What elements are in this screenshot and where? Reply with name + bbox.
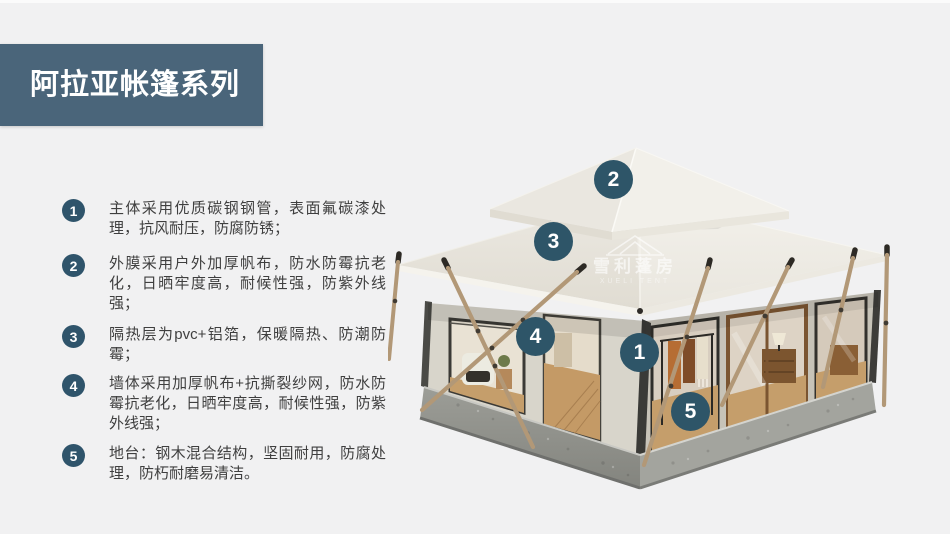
guy-pole [884, 247, 889, 405]
feature-list: 1 主体采用优质碳钢钢管，表面氟碳漆处理，抗风耐压，防腐防锈； 2 外膜采用户外… [50, 199, 386, 484]
feature-number-badge: 2 [62, 254, 85, 277]
page-title: 阿拉亚帐篷系列 [30, 71, 240, 100]
title-banner: 阿拉亚帐篷系列 [0, 44, 263, 126]
feature-number-badge: 1 [62, 199, 85, 222]
tent-illustration [388, 133, 950, 525]
feature-item: 1 主体采用优质碳钢钢管，表面氟碳漆处理，抗风耐压，防腐防锈； [50, 199, 386, 239]
tent-callout-3: 3 [534, 222, 573, 261]
feature-number-badge: 3 [62, 325, 85, 348]
feature-item: 3 隔热层为pvc+铝箔，保暖隔热、防潮防霉； [50, 325, 386, 365]
feature-text: 隔热层为pvc+铝箔，保暖隔热、防潮防霉； [109, 325, 386, 365]
tent-callout-4: 4 [516, 317, 555, 356]
feature-text: 主体采用优质碳钢钢管，表面氟碳漆处理，抗风耐压，防腐防锈； [109, 199, 386, 239]
feature-text: 地台：钢木混合结构，坚固耐用，防腐处理，防朽耐磨易清洁。 [109, 444, 386, 484]
feature-text: 墙体采用加厚帆布+抗撕裂纱网，防水防霉抗老化，日晒牢度高，耐候性强，防紫外线强； [109, 374, 386, 434]
top-edge-strip [0, 0, 950, 3]
feature-item: 5 地台：钢木混合结构，坚固耐用，防腐处理，防朽耐磨易清洁。 [50, 444, 386, 484]
tent-callout-1: 1 [620, 333, 659, 372]
feature-item: 4 墙体采用加厚帆布+抗撕裂纱网，防水防霉抗老化，日晒牢度高，耐候性强，防紫外线… [50, 374, 386, 434]
tent-callout-5: 5 [671, 392, 710, 431]
tent-callout-2: 2 [594, 160, 633, 199]
feature-number-badge: 4 [62, 374, 85, 397]
feature-number-badge: 5 [62, 444, 85, 467]
feature-item: 2 外膜采用户外加厚帆布，防水防霉抗老化，日晒牢度高，耐候性强，防紫外线强； [50, 254, 386, 314]
feature-text: 外膜采用户外加厚帆布，防水防霉抗老化，日晒牢度高，耐候性强，防紫外线强； [109, 254, 386, 314]
guy-pole [389, 254, 399, 359]
